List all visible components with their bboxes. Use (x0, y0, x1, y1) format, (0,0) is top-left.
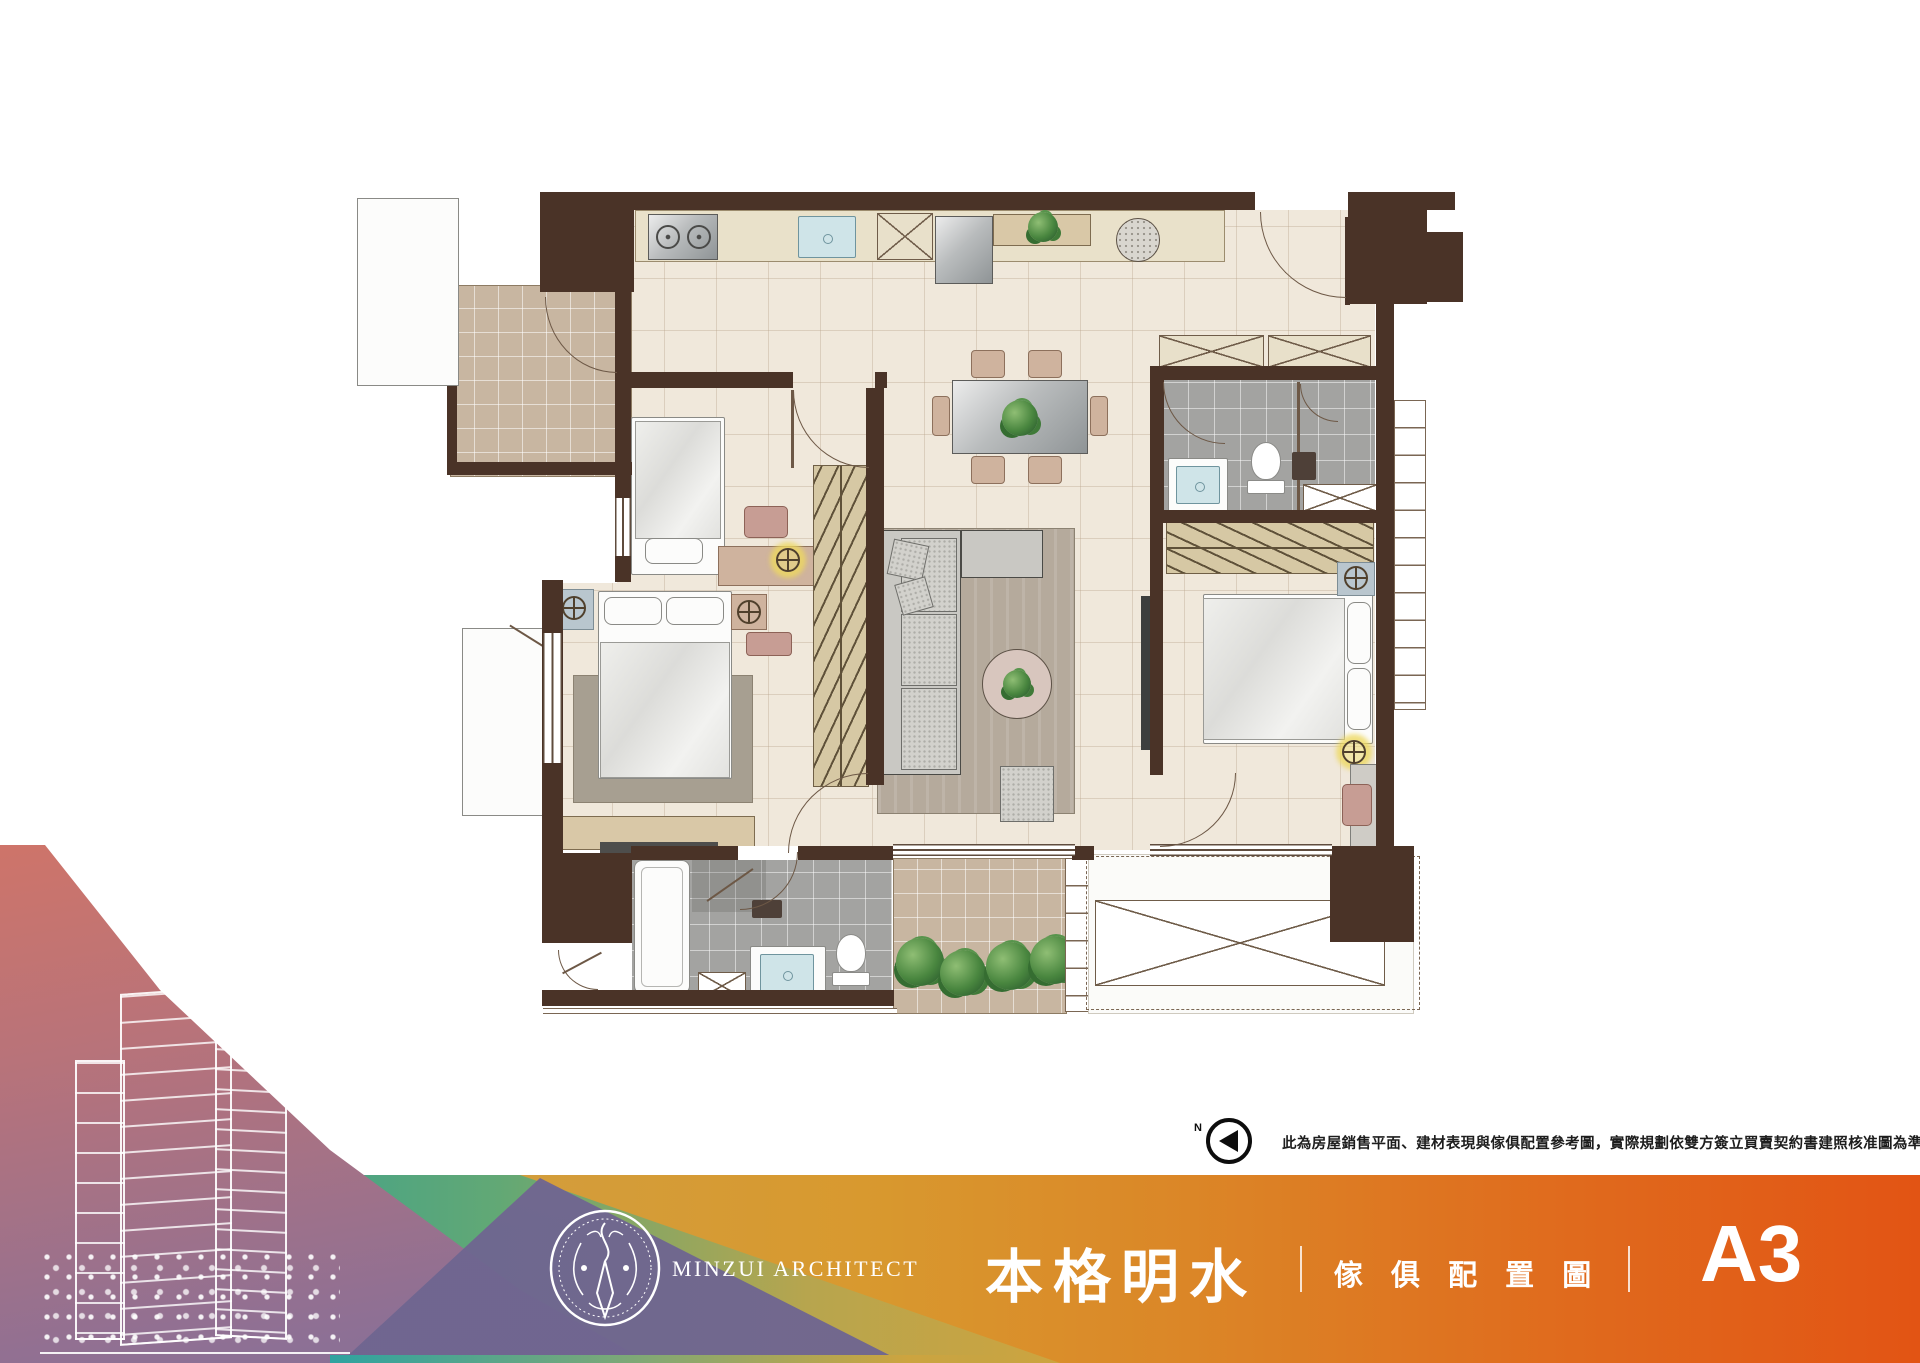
wall (542, 990, 894, 1006)
kitchen-cabinet (877, 213, 933, 260)
building-sketch-icon (40, 940, 360, 1363)
ceiling-light-icon (737, 600, 761, 624)
drawing-type-label: 傢 俱 配 置 圖 (1334, 1252, 1601, 1294)
desk-chair (1342, 784, 1372, 826)
brand-emblem-icon (545, 1205, 665, 1331)
wall (1348, 192, 1427, 304)
window-bay (462, 628, 548, 816)
bed-pillow (1347, 668, 1371, 730)
sliding-window (893, 844, 1075, 856)
dining-chair (932, 396, 950, 436)
bed-pillow (604, 597, 662, 625)
window (543, 633, 562, 763)
bathtub-icon (634, 860, 690, 994)
stove-icon (648, 214, 718, 260)
project-name: 本格明水 (985, 1230, 1257, 1314)
wall (1150, 366, 1394, 380)
wall (542, 853, 632, 943)
bath-accessories (1292, 452, 1316, 480)
wall (1072, 846, 1094, 860)
unit-label: A3 (1700, 1208, 1802, 1300)
sofa-pillow (887, 539, 930, 582)
kitchen-sink-icon (798, 216, 856, 258)
bath-sink-icon (760, 954, 814, 994)
dining-chair (1090, 396, 1108, 436)
bath-sink-icon (1176, 466, 1220, 504)
sliding-window (1150, 844, 1332, 856)
brand-name-en: MINZUI ARCHITECT (672, 1256, 919, 1282)
wall (450, 462, 632, 475)
dining-chair (1028, 456, 1062, 484)
bed-pillow (1347, 602, 1371, 664)
compass-n-label: N (1194, 1122, 1202, 1134)
window (615, 498, 631, 556)
plant-icon (986, 942, 1034, 990)
bed-blanket (600, 642, 730, 778)
wall (560, 192, 1255, 210)
wall (875, 372, 887, 388)
sill-line (543, 1008, 897, 1014)
sofa-chaise (961, 530, 1043, 578)
wall (1150, 378, 1164, 514)
bath-niche (1303, 484, 1377, 512)
shower-glass (1297, 382, 1300, 512)
wall (1150, 510, 1163, 775)
side-planter (1394, 400, 1426, 710)
wall (1330, 846, 1414, 942)
door-leaf (791, 390, 794, 468)
wall (1425, 192, 1455, 210)
north-arrow-icon (1206, 1118, 1252, 1164)
divider-line (1628, 1246, 1630, 1292)
dining-chair (971, 350, 1005, 378)
plant-icon (1028, 212, 1058, 242)
wall (1150, 510, 1394, 523)
plant-icon (940, 950, 986, 996)
dining-chair (971, 456, 1005, 484)
entry-opening (1255, 192, 1348, 210)
footer-teal-strip (330, 1355, 1010, 1363)
bed-blanket (1203, 598, 1345, 740)
plant-icon (1002, 400, 1038, 436)
plant-icon (896, 938, 944, 986)
ceiling-light-icon (1342, 740, 1366, 764)
wall (540, 192, 634, 292)
wall (1376, 300, 1394, 850)
ceiling-light-icon (776, 548, 800, 572)
hall-closet (1159, 335, 1264, 368)
outdoor-unit-box (357, 198, 459, 386)
exterior-gap (561, 475, 617, 583)
wardrobe-hangers (813, 465, 869, 787)
balcony-tile (893, 858, 1067, 1014)
round-stool (1116, 218, 1160, 262)
bed-pillow (645, 538, 703, 564)
ottoman (1000, 766, 1054, 822)
plant-icon (1003, 670, 1031, 698)
ceiling-light-icon (562, 596, 586, 620)
fridge-icon (935, 216, 993, 284)
ceiling-light-icon (1344, 566, 1368, 590)
bed-pillow (666, 597, 724, 625)
wall (618, 372, 793, 388)
wall (1425, 232, 1463, 302)
floorplan-sheet: N 此為房屋銷售平面、建材表現與傢俱配置參考圖，實際規劃依雙方簽立買賣契約書建照… (0, 0, 1920, 1363)
bench (746, 632, 792, 656)
dining-chair (1028, 350, 1062, 378)
divider-line (1300, 1246, 1302, 1292)
disclaimer-text: 此為房屋銷售平面、建材表現與傢俱配置參考圖，實際規劃依雙方簽立買賣契約書建照核准… (1282, 1132, 1920, 1153)
desk-chair (744, 506, 788, 538)
hall-closet (1268, 335, 1371, 368)
bed-blanket (635, 421, 721, 539)
